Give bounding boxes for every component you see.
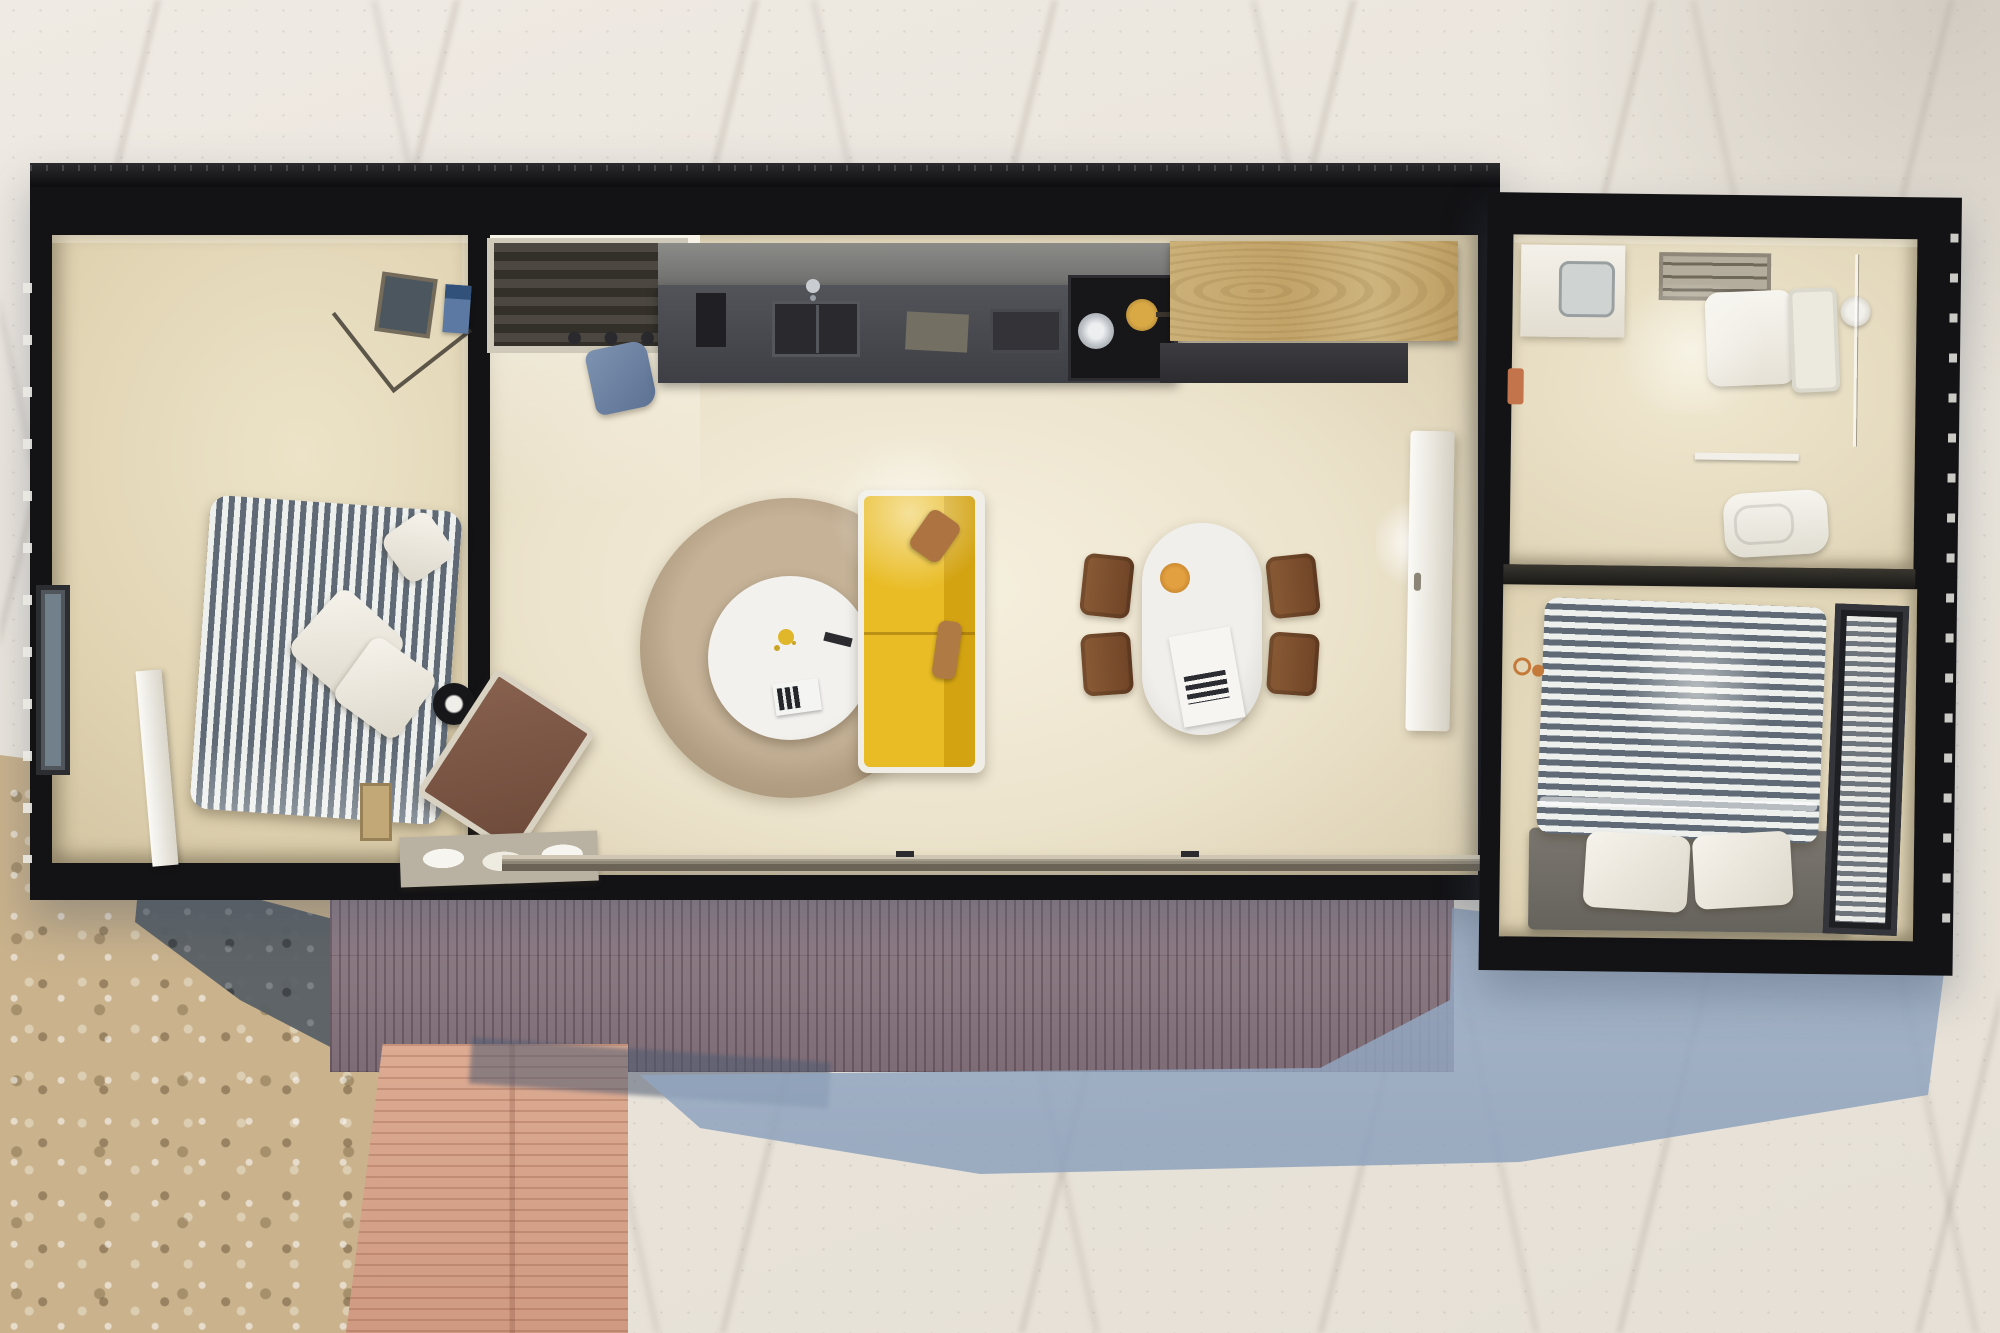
cutting-board — [905, 311, 969, 352]
bedroom2-light-glow — [1611, 624, 1783, 756]
toilet-tank — [1788, 287, 1840, 393]
flower-vase — [778, 629, 794, 645]
pillow — [1582, 831, 1691, 914]
steel-pot — [1078, 313, 1114, 349]
coat-hooks — [563, 330, 659, 346]
module-annex — [1478, 192, 1961, 976]
bedroom1-window — [36, 585, 70, 775]
pillow — [1692, 830, 1794, 910]
blue-books — [442, 284, 471, 334]
orange-glasses — [1516, 660, 1528, 672]
floorplan-render-scene — [0, 0, 2000, 1333]
wall-tick-marks-left — [23, 283, 32, 863]
kitchen-tray — [990, 309, 1062, 353]
coffee-machine — [696, 293, 726, 347]
open-window-sash — [136, 669, 179, 867]
bathroom-light-glow — [1605, 283, 1777, 415]
towel-rail — [1695, 453, 1799, 461]
sliding-door-track — [502, 855, 1486, 871]
kitchen-faucet — [806, 279, 820, 293]
room-bedroom-left — [52, 235, 468, 863]
wood-cabinet — [1170, 241, 1458, 341]
magazine-stack — [772, 678, 822, 716]
dining-chair — [1265, 553, 1321, 620]
dining-chair — [1080, 631, 1134, 696]
coffee-table — [708, 576, 872, 740]
bidet — [1722, 489, 1830, 559]
orange-bowl — [1160, 563, 1190, 593]
orange-hand-towel — [1507, 368, 1523, 404]
timber-stool — [360, 783, 392, 841]
dining-chair — [1266, 631, 1320, 696]
brass-pan — [1126, 299, 1158, 331]
bedroom2-window-blinds — [1823, 603, 1910, 936]
kitchen-sink — [772, 301, 860, 357]
open-interior-door — [1405, 431, 1454, 732]
module-main — [30, 163, 1500, 900]
ceiling-light-glow — [830, 433, 990, 593]
corner-shelf-board — [379, 276, 434, 334]
dining-chair — [1079, 553, 1135, 620]
dark-bench — [1160, 343, 1408, 383]
blue-bag — [584, 339, 658, 416]
